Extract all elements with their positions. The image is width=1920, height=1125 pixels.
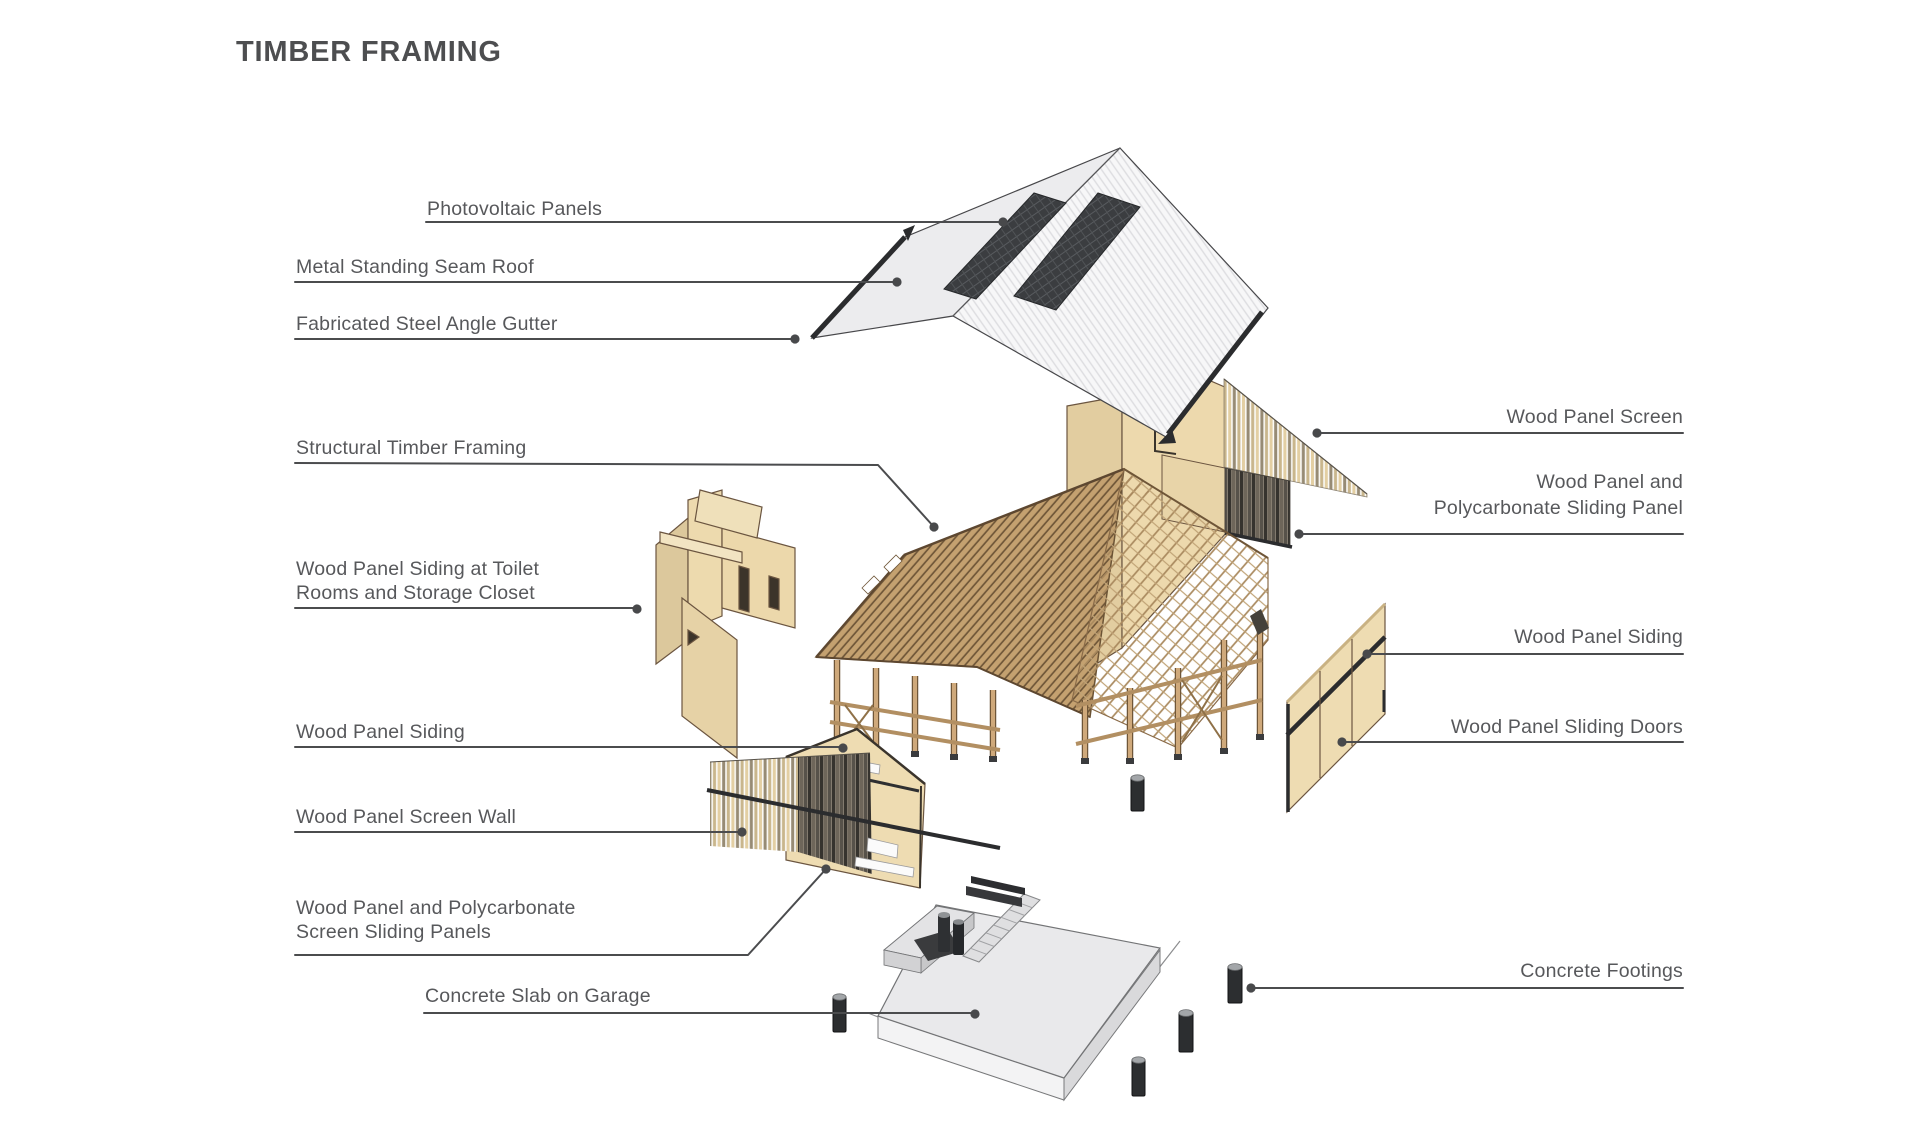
page-title: TIMBER FRAMING	[236, 36, 502, 69]
label-structural-timber-framing: Structural Timber Framing	[296, 436, 526, 460]
leader-framing	[295, 463, 934, 527]
concrete-footing	[1228, 964, 1242, 1003]
label-concrete-footings: Concrete Footings	[1520, 959, 1683, 983]
label-wood-panel-sliding-doors: Wood Panel Sliding Doors	[1451, 715, 1683, 739]
label-wood-panel-screen: Wood Panel Screen	[1507, 405, 1683, 429]
toilet-room-siding-assembly	[656, 490, 795, 758]
label-wood-panel-siding-left: Wood Panel Siding	[296, 720, 465, 744]
label-polycarbonate-sliding-panel: Wood Panel and Polycarbonate Sliding Pan…	[1434, 469, 1683, 521]
water-tank	[938, 914, 950, 952]
label-fabricated-steel-angle-gutter: Fabricated Steel Angle Gutter	[296, 312, 558, 336]
concrete-footing	[1179, 1010, 1193, 1052]
sliding-door-panel-assembly	[1250, 604, 1385, 812]
timber-framing-diagram: TIMBER FRAMING Photovoltaic Panels Metal…	[0, 0, 1920, 1125]
label-concrete-slab-on-garage: Concrete Slab on Garage	[425, 984, 651, 1008]
label-wood-panel-screen-wall: Wood Panel Screen Wall	[296, 805, 516, 829]
concrete-footing	[1131, 775, 1144, 811]
label-photovoltaic-panels: Photovoltaic Panels	[427, 197, 602, 221]
label-screen-sliding-panels: Wood Panel and Polycarbonate Screen Slid…	[296, 896, 576, 944]
label-metal-standing-seam-roof: Metal Standing Seam Roof	[296, 255, 534, 279]
timber-footpads	[833, 734, 1264, 764]
label-wood-panel-siding-right: Wood Panel Siding	[1514, 625, 1683, 649]
water-tank	[953, 921, 964, 955]
exploded-axonometric-drawing	[0, 0, 1920, 1125]
concrete-footing	[1132, 1057, 1145, 1096]
label-toilet-room-siding: Wood Panel Siding at Toilet Rooms and St…	[296, 557, 539, 605]
